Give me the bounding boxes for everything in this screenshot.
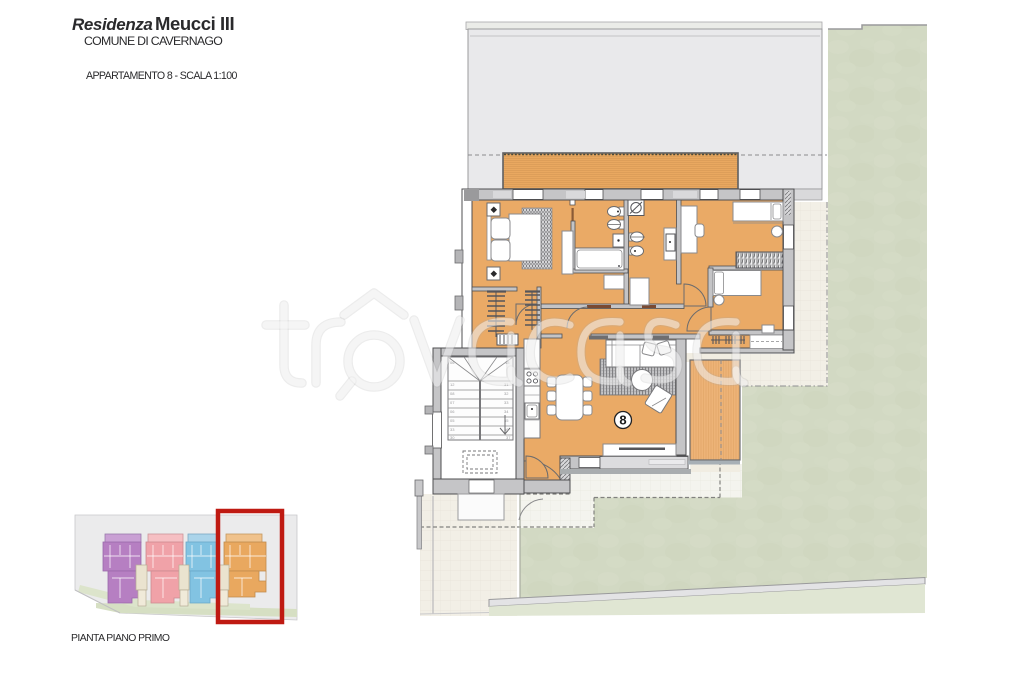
svg-text:36: 36 [504,427,509,432]
svg-text:06: 06 [450,409,455,414]
svg-text:33: 33 [450,427,455,432]
svg-text:Residenza: Residenza [72,15,153,34]
svg-text:12: 12 [450,382,455,387]
svg-text:35: 35 [504,418,509,423]
svg-text:37: 37 [506,435,511,440]
svg-text:32: 32 [504,391,509,396]
svg-text:COMUNE DI CAVERNAGO: COMUNE DI CAVERNAGO [84,34,222,48]
svg-text:34: 34 [504,409,509,414]
svg-text:05: 05 [450,418,455,423]
svg-text:07: 07 [450,400,455,405]
svg-text:08: 08 [450,391,455,396]
svg-text:Meucci III: Meucci III [155,13,234,34]
svg-text:06: 06 [450,360,455,365]
svg-text:8: 8 [619,413,626,428]
svg-text:APPARTAMENTO 8 - SCALA 1:100: APPARTAMENTO 8 - SCALA 1:100 [86,70,238,82]
svg-text:33: 33 [504,400,509,405]
svg-text:PIANTA PIANO PRIMO: PIANTA PIANO PRIMO [71,633,170,644]
svg-text:30: 30 [450,435,455,440]
